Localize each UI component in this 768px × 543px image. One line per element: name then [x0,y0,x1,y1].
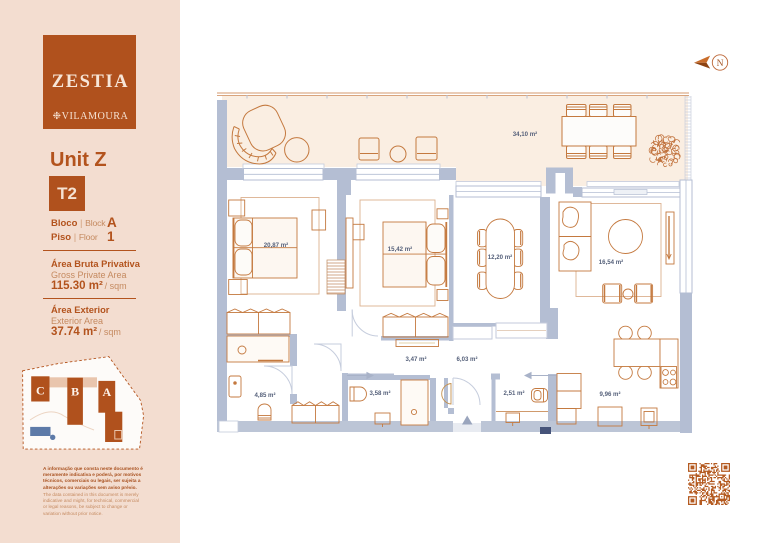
svg-text:N: N [717,59,724,69]
svg-text:6,03 m²: 6,03 m² [456,356,477,363]
svg-text:3,58 m²: 3,58 m² [369,390,390,397]
svg-text:34,10 m²: 34,10 m² [513,131,537,138]
svg-text:12,20 m²: 12,20 m² [488,254,512,261]
svg-text:16,54 m²: 16,54 m² [599,259,623,266]
svg-text:3,47 m²: 3,47 m² [405,356,426,363]
svg-text:2,51 m²: 2,51 m² [503,390,524,397]
svg-text:20,87 m²: 20,87 m² [264,242,288,249]
svg-text:4,85 m²: 4,85 m² [254,392,275,399]
svg-text:15,42 m²: 15,42 m² [388,246,412,253]
svg-text:9,96 m²: 9,96 m² [599,391,620,398]
